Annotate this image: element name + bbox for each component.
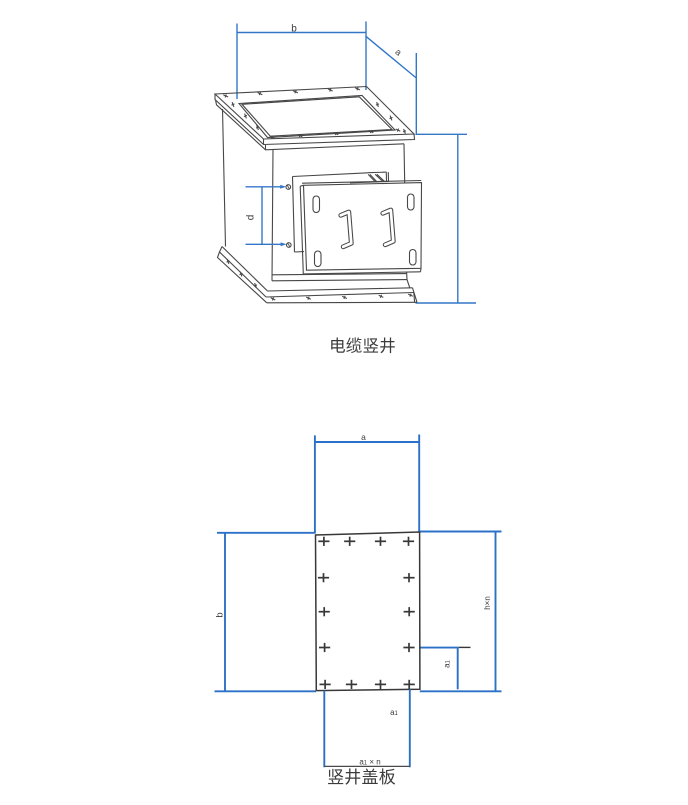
svg-text:a: a (361, 432, 366, 442)
svg-text:b: b (215, 612, 226, 617)
svg-text:d: d (246, 215, 257, 221)
svg-text:a1 × n: a1 × n (359, 758, 380, 767)
svg-text:竖井盖板: 竖井盖板 (327, 768, 396, 787)
svg-text:h×n: h×n (483, 596, 492, 610)
svg-text:电缆竖井: 电缆竖井 (329, 337, 396, 356)
svg-text:b: b (291, 24, 297, 35)
